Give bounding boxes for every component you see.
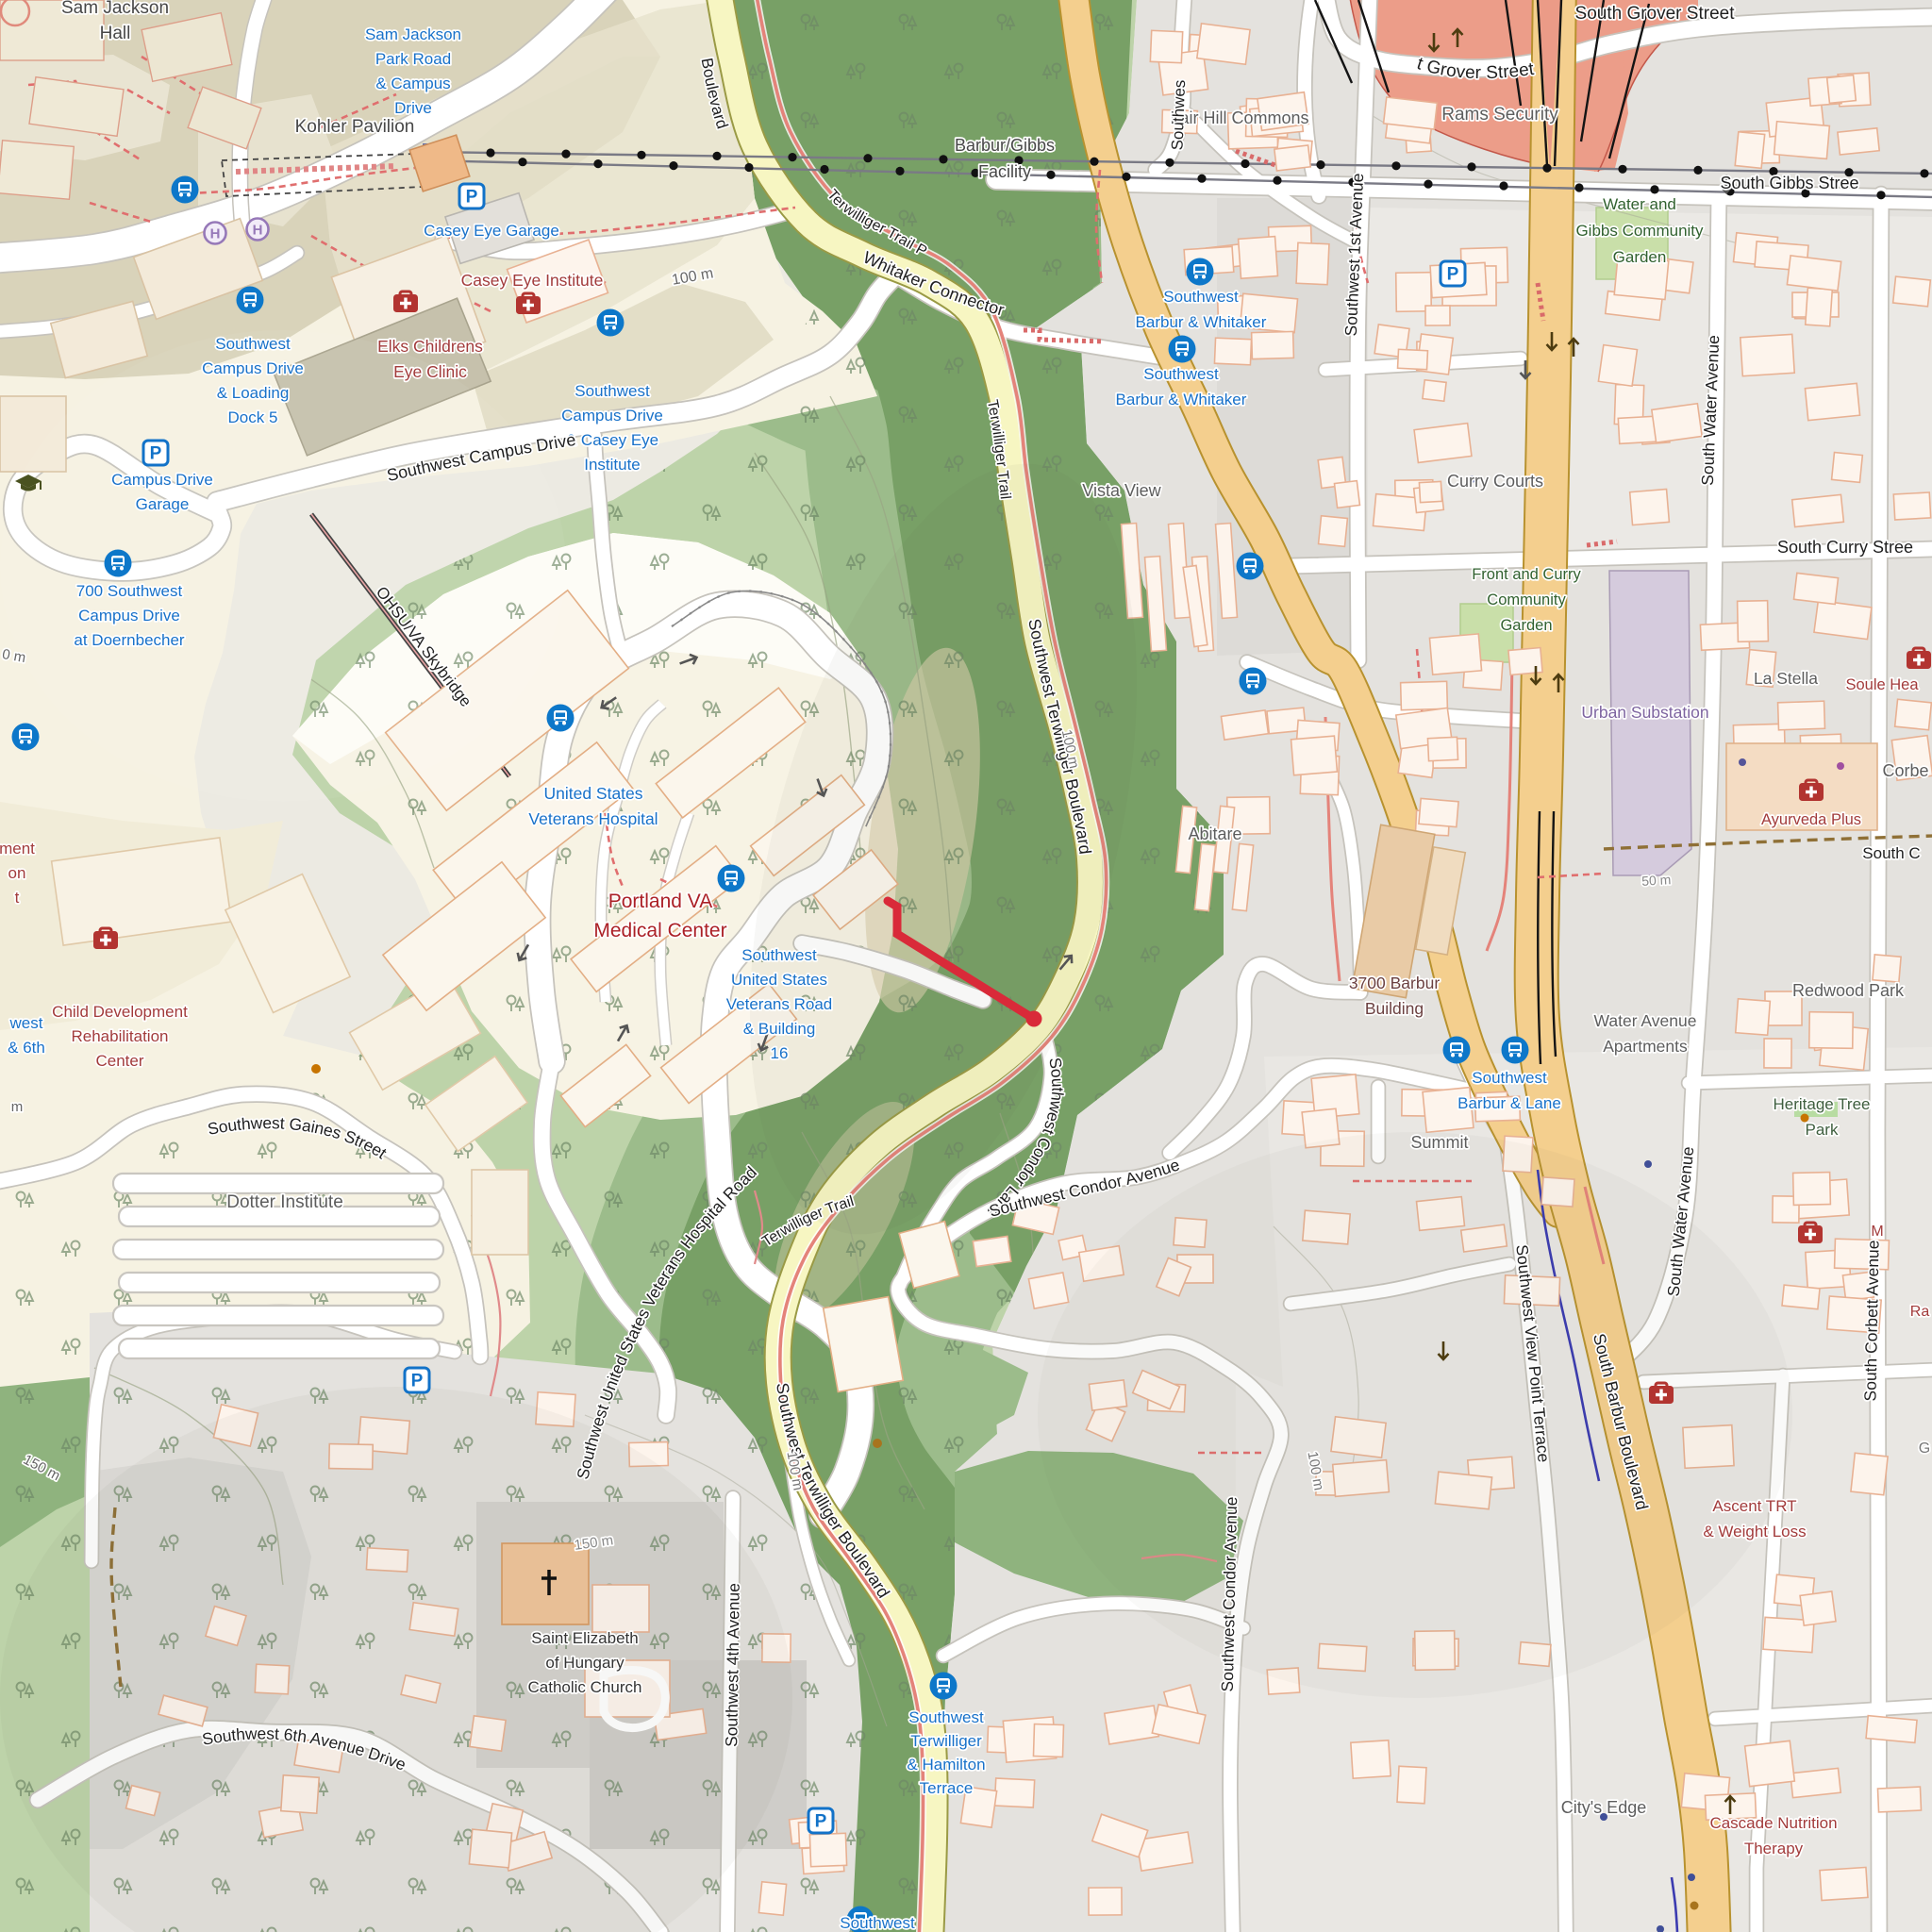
svg-text:Terrace: Terrace — [920, 1779, 974, 1797]
svg-text:Building: Building — [1365, 999, 1424, 1018]
svg-text:& Campus: & Campus — [375, 75, 450, 92]
svg-text:Southwest: Southwest — [741, 946, 817, 964]
svg-text:H: H — [253, 223, 263, 239]
svg-text:m: m — [11, 1099, 24, 1115]
svg-text:Southwest: Southwest — [1472, 1069, 1547, 1087]
svg-text:Water Avenue: Water Avenue — [1594, 1011, 1697, 1030]
svg-text:Terwilliger: Terwilliger — [910, 1732, 982, 1750]
svg-text:Catholic Church: Catholic Church — [528, 1678, 642, 1696]
svg-text:P: P — [411, 1372, 424, 1391]
svg-text:Dock 5: Dock 5 — [228, 408, 278, 426]
svg-text:P: P — [815, 1812, 827, 1832]
svg-text:Summit: Summit — [1410, 1133, 1468, 1152]
svg-text:Garage: Garage — [136, 495, 190, 513]
svg-text:M: M — [1871, 1224, 1883, 1240]
svg-text:Urban Substation: Urban Substation — [1581, 703, 1708, 722]
svg-text:Kohler Pavilion: Kohler Pavilion — [295, 117, 415, 137]
svg-text:Front and Curry: Front and Curry — [1472, 566, 1581, 583]
svg-text:Veterans Hospital: Veterans Hospital — [528, 809, 658, 828]
svg-text:Rams Security: Rams Security — [1441, 105, 1558, 125]
svg-text:& Building: & Building — [743, 1020, 816, 1038]
svg-text:Ascent TRT: Ascent TRT — [1712, 1497, 1796, 1515]
svg-text:Campus Drive: Campus Drive — [111, 471, 213, 489]
svg-text:Ra: Ra — [1910, 1304, 1930, 1320]
svg-text:Barbur & Lane: Barbur & Lane — [1457, 1094, 1561, 1112]
svg-text:Dotter Institute: Dotter Institute — [226, 1192, 343, 1212]
svg-text:t: t — [15, 889, 20, 907]
svg-text:Heritage Tree: Heritage Tree — [1774, 1095, 1871, 1113]
svg-text:Corbe: Corbe — [1882, 761, 1928, 780]
svg-text:South Gibbs Stree: South Gibbs Stree — [1720, 174, 1858, 192]
svg-text:& Hamilton: & Hamilton — [907, 1756, 985, 1774]
svg-text:P: P — [466, 188, 478, 208]
svg-text:Casey Eye Garage: Casey Eye Garage — [424, 222, 559, 240]
svg-text:Facility: Facility — [978, 162, 1031, 181]
svg-text:Curry Courts: Curry Courts — [1447, 472, 1543, 491]
svg-text:Apartments: Apartments — [1603, 1037, 1688, 1056]
svg-text:City's Edge: City's Edge — [1561, 1798, 1646, 1817]
svg-text:Southwest 4th Avenue: Southwest 4th Avenue — [722, 1583, 743, 1747]
svg-text:P: P — [1447, 265, 1459, 285]
svg-text:at Doernbecher: at Doernbecher — [74, 631, 185, 649]
svg-text:Institute: Institute — [584, 456, 641, 474]
svg-text:Sam Jackson: Sam Jackson — [365, 25, 461, 43]
svg-text:Casey Eye Institute: Casey Eye Institute — [461, 271, 604, 290]
svg-text:Garden: Garden — [1500, 617, 1552, 634]
svg-text:Eye Clinic: Eye Clinic — [393, 362, 467, 381]
svg-text:Barbur/Gibbs: Barbur/Gibbs — [955, 136, 1055, 155]
svg-text:Drive: Drive — [394, 99, 432, 117]
svg-text:Abitare: Abitare — [1188, 824, 1241, 843]
svg-text:Redwood Park: Redwood Park — [1792, 981, 1905, 1000]
svg-text:Cascade Nutrition: Cascade Nutrition — [1709, 1814, 1837, 1832]
svg-text:Gibbs Community: Gibbs Community — [1575, 222, 1704, 240]
svg-text:Hall: Hall — [100, 24, 131, 43]
svg-text:South C: South C — [1862, 844, 1920, 862]
svg-text:& Casey Eye: & Casey Eye — [566, 431, 658, 449]
svg-text:H: H — [210, 226, 221, 242]
svg-text:Barbur & Whitaker: Barbur & Whitaker — [1136, 313, 1267, 331]
svg-text:South Curry Stree: South Curry Stree — [1777, 538, 1913, 557]
svg-text:Barbur & Whitaker: Barbur & Whitaker — [1116, 391, 1247, 408]
svg-text:United States: United States — [543, 784, 642, 803]
svg-text:Southwes: Southwes — [1168, 79, 1189, 150]
svg-text:Saint Elizabeth: Saint Elizabeth — [531, 1629, 638, 1647]
svg-text:Medical Center: Medical Center — [593, 920, 726, 941]
svg-text:Garden: Garden — [1613, 248, 1667, 266]
svg-text:South Corbett Avenue: South Corbett Avenue — [1860, 1240, 1882, 1401]
svg-text:United States: United States — [731, 971, 827, 989]
svg-text:ment: ment — [0, 840, 35, 858]
svg-text:P: P — [150, 444, 162, 464]
svg-text:Sam Jackson: Sam Jackson — [61, 0, 169, 18]
svg-text:Southwest: Southwest — [1143, 365, 1219, 383]
svg-text:& Loading: & Loading — [217, 384, 290, 402]
svg-text:Veterans Road: Veterans Road — [726, 995, 832, 1013]
svg-text:& 6th: & 6th — [8, 1039, 45, 1057]
svg-text:Water and: Water and — [1603, 195, 1676, 213]
svg-text:west: west — [9, 1014, 43, 1032]
svg-text:Ayurveda Plus: Ayurveda Plus — [1761, 811, 1861, 828]
svg-text:Lair Hill Commons: Lair Hill Commons — [1170, 108, 1308, 127]
svg-text:Center: Center — [95, 1052, 143, 1070]
svg-text:50 m: 50 m — [1641, 872, 1672, 889]
svg-text:Elks Childrens: Elks Childrens — [377, 337, 483, 356]
svg-text:Southwest: Southwest — [908, 1708, 984, 1726]
svg-text:Southwest: Southwest — [575, 382, 650, 400]
svg-text:& Weight Loss: & Weight Loss — [1703, 1523, 1806, 1541]
svg-text:Campus Drive: Campus Drive — [78, 607, 180, 625]
svg-text:Portland VA: Portland VA — [608, 891, 713, 912]
svg-text:G: G — [1919, 1441, 1930, 1457]
svg-text:Park Road: Park Road — [375, 50, 451, 68]
svg-text:16: 16 — [771, 1044, 789, 1062]
svg-text:South Grover Street: South Grover Street — [1575, 4, 1736, 24]
svg-text:Campus Drive: Campus Drive — [202, 359, 304, 377]
svg-text:Soule Hea: Soule Hea — [1845, 676, 1919, 693]
svg-text:Campus Drive: Campus Drive — [561, 407, 663, 425]
svg-text:Southwest: Southwest — [215, 335, 291, 353]
svg-text:Community: Community — [1487, 591, 1566, 608]
svg-text:on: on — [8, 864, 26, 882]
svg-text:of Hungary: of Hungary — [545, 1654, 625, 1672]
svg-text:700 Southwest: 700 Southwest — [76, 582, 183, 600]
svg-text:Southwest: Southwest — [1163, 288, 1239, 306]
svg-text:Vista View: Vista View — [1082, 481, 1161, 500]
svg-text:Therapy: Therapy — [1744, 1840, 1804, 1857]
svg-text:3700 Barbur: 3700 Barbur — [1349, 974, 1440, 992]
svg-text:Southwest: Southwest — [840, 1914, 915, 1932]
svg-text:La Stella: La Stella — [1754, 669, 1818, 688]
svg-text:Rehabilitation: Rehabilitation — [71, 1027, 168, 1045]
svg-text:Child Development: Child Development — [52, 1003, 188, 1021]
svg-text:Park: Park — [1806, 1121, 1839, 1139]
